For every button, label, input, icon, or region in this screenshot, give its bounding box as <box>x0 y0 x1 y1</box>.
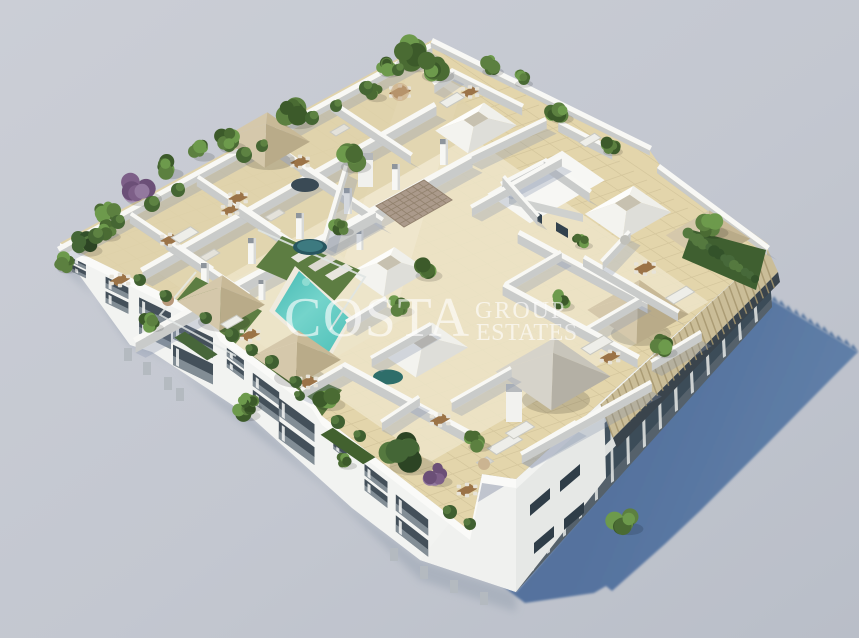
svg-text:COSTA: COSTA <box>284 287 471 349</box>
svg-text:ESTATES: ESTATES <box>476 320 578 346</box>
